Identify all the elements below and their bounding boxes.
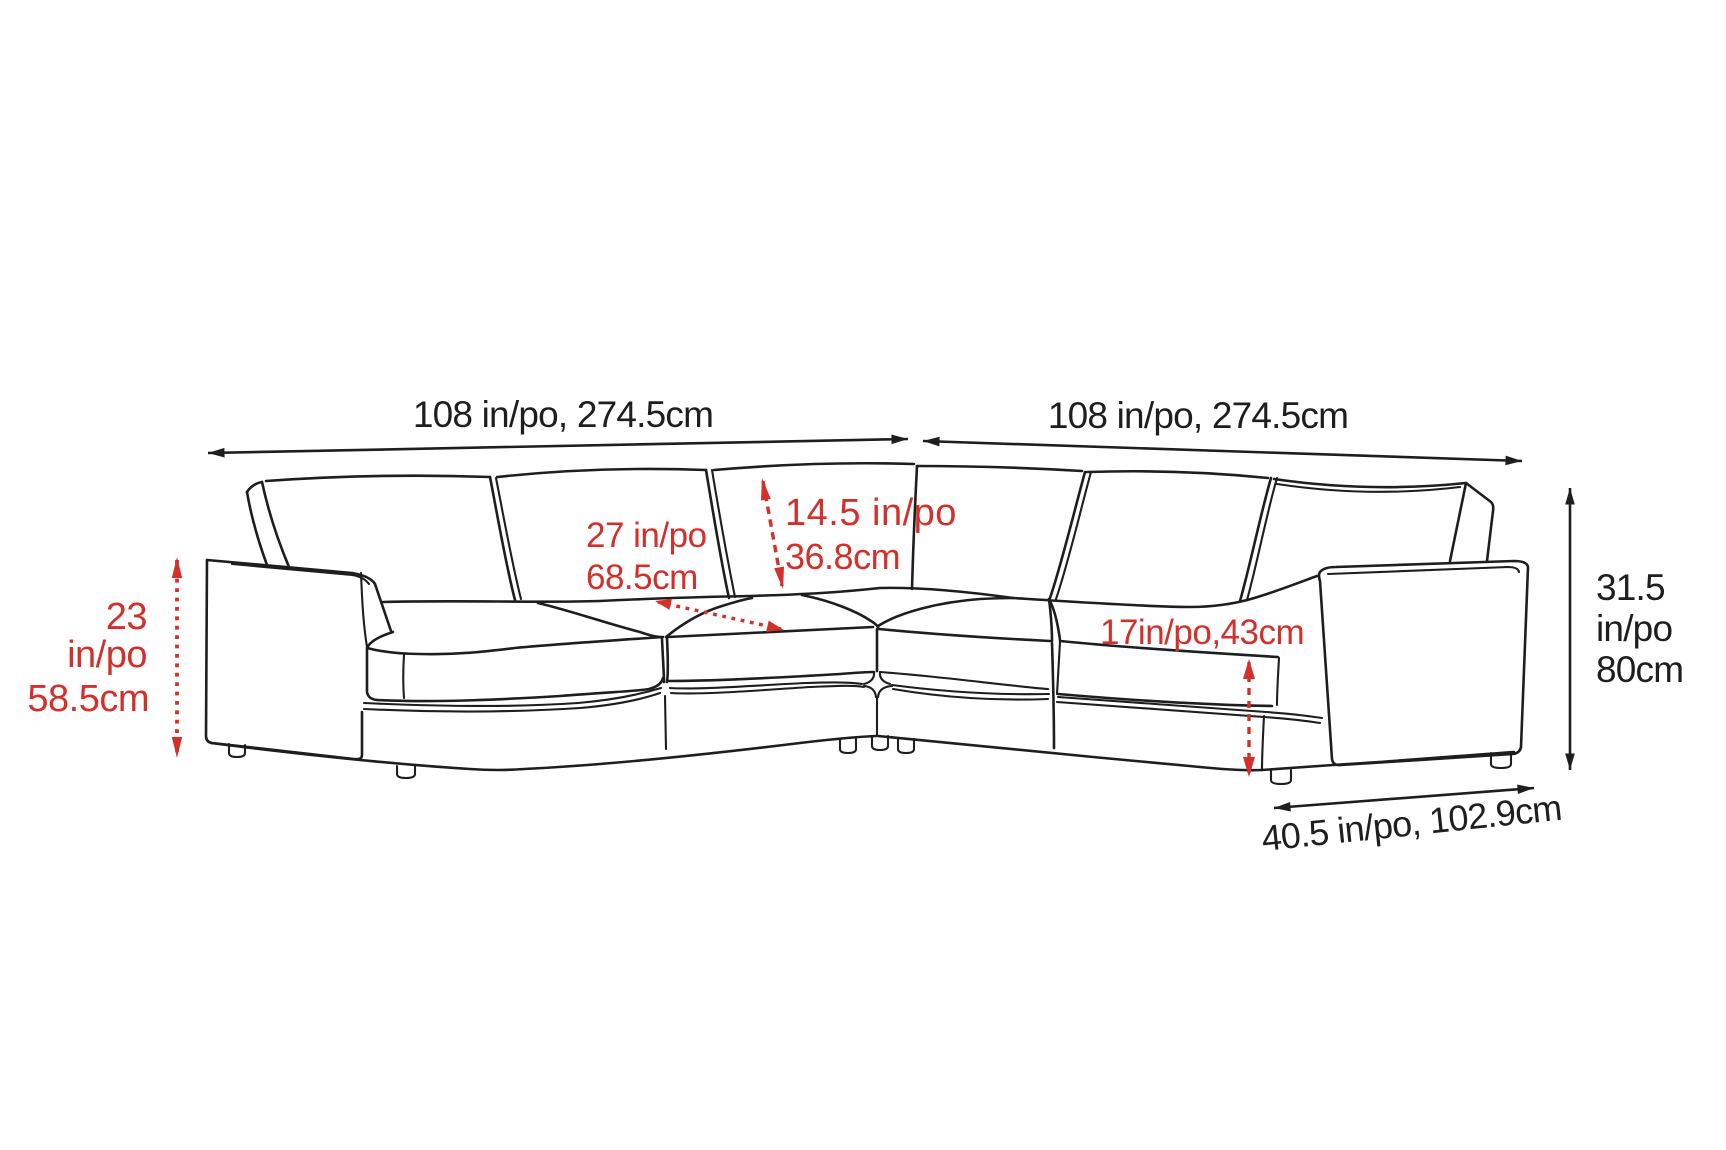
svg-text:108 in/po, 274.5cm: 108 in/po, 274.5cm	[413, 394, 713, 435]
svg-text:27 in/po: 27 in/po	[586, 516, 707, 555]
svg-text:in/po: in/po	[1596, 608, 1672, 649]
svg-text:14.5 in/po: 14.5 in/po	[785, 492, 957, 534]
svg-text:31.5: 31.5	[1596, 567, 1665, 608]
svg-text:58.5cm: 58.5cm	[27, 678, 149, 720]
svg-text:17in/po,43cm: 17in/po,43cm	[1100, 613, 1304, 652]
svg-text:80cm: 80cm	[1596, 649, 1683, 690]
svg-text:23: 23	[106, 596, 147, 638]
svg-text:68.5cm: 68.5cm	[586, 558, 698, 597]
svg-text:36.8cm: 36.8cm	[785, 536, 900, 577]
svg-text:108 in/po, 274.5cm: 108 in/po, 274.5cm	[1048, 395, 1348, 436]
svg-text:in/po: in/po	[67, 634, 147, 676]
